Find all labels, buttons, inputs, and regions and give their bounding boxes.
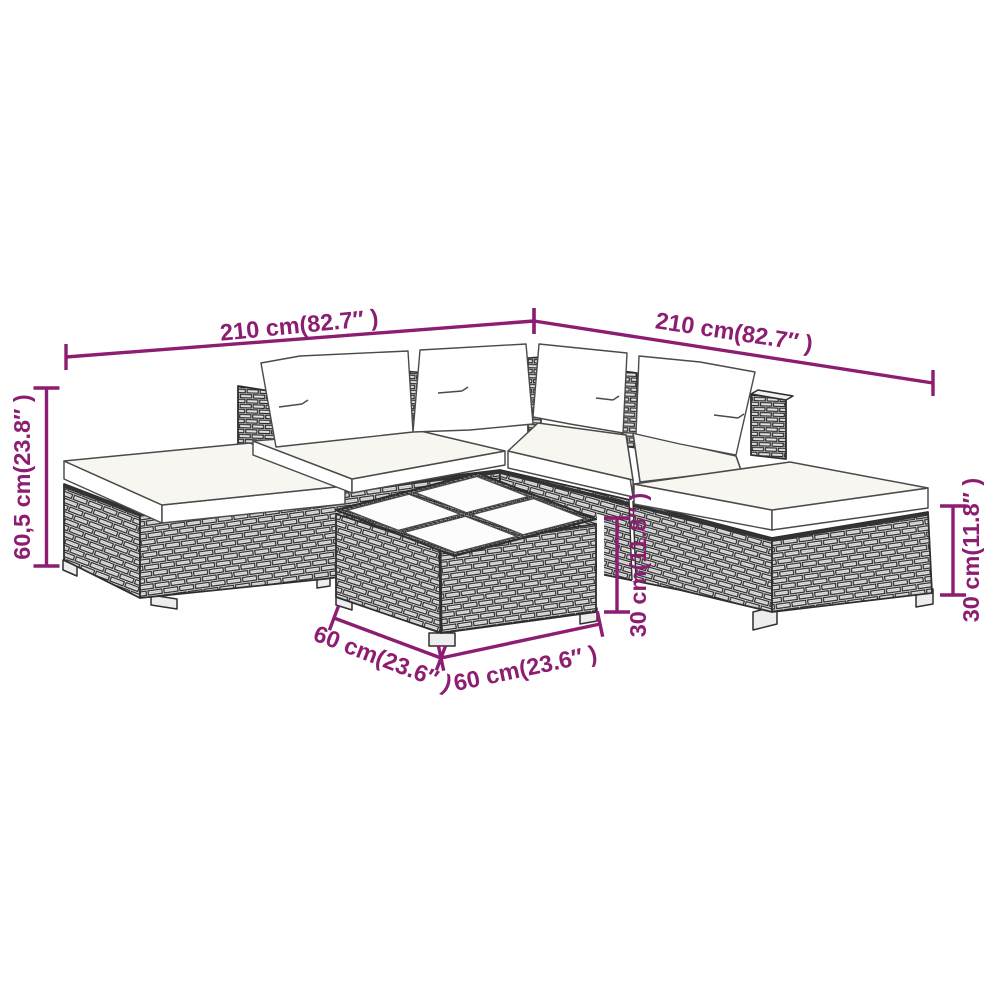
svg-text:60,5 cm(23.8″ ): 60,5 cm(23.8″ ): [9, 394, 35, 559]
svg-text:30 cm(11.8″ ): 30 cm(11.8″ ): [958, 478, 984, 623]
svg-text:30 cm(11.8″ ): 30 cm(11.8″ ): [625, 493, 651, 638]
